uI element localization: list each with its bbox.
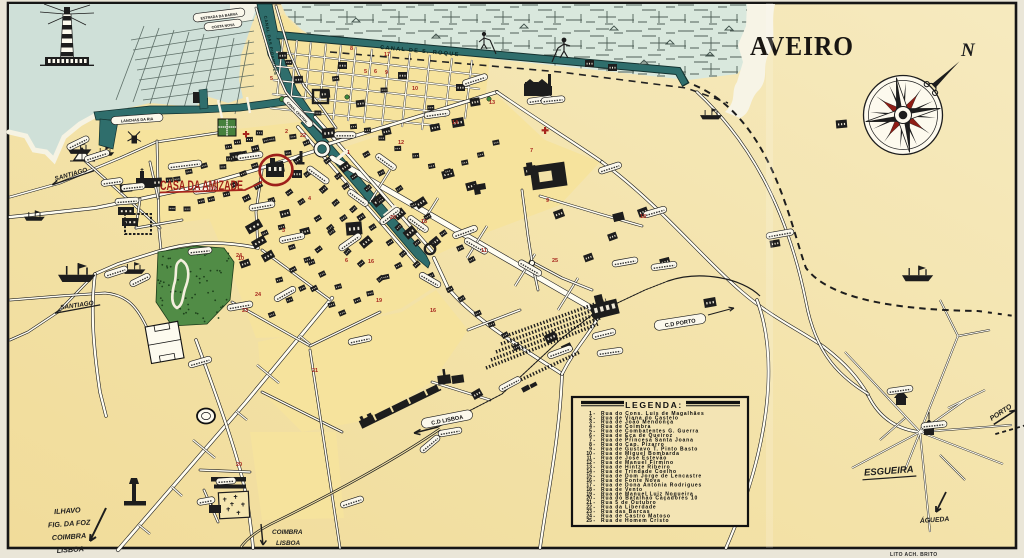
svg-text:8: 8 <box>350 46 353 52</box>
svg-text:LITO ACH. BRITO: LITO ACH. BRITO <box>890 552 938 558</box>
svg-text:LISBOA: LISBOA <box>276 540 301 547</box>
svg-text:25 -: 25 - <box>586 518 595 524</box>
svg-text:15: 15 <box>421 219 427 225</box>
svg-text:6: 6 <box>345 258 348 264</box>
svg-text:5: 5 <box>364 69 367 75</box>
svg-text:COIMBRA: COIMBRA <box>272 529 303 536</box>
svg-text:10: 10 <box>238 256 244 262</box>
svg-text:5: 5 <box>270 76 273 82</box>
svg-text:2: 2 <box>285 129 288 135</box>
svg-text:23: 23 <box>242 308 248 314</box>
svg-text:12: 12 <box>398 140 404 146</box>
svg-text:AVEIRO: AVEIRO <box>750 31 854 61</box>
svg-text:17: 17 <box>384 52 390 58</box>
svg-text:N: N <box>960 40 976 61</box>
svg-text:20: 20 <box>390 215 396 221</box>
svg-text:ILHAVO: ILHAVO <box>54 505 82 516</box>
svg-text:9: 9 <box>546 198 549 204</box>
svg-text:18: 18 <box>640 214 646 220</box>
svg-text:1: 1 <box>347 150 350 156</box>
svg-text:21: 21 <box>312 368 318 374</box>
svg-text:13: 13 <box>489 100 495 106</box>
svg-text:16: 16 <box>368 259 374 265</box>
svg-text:Rua de Homem Cristo: Rua de Homem Cristo <box>601 518 669 524</box>
svg-text:7: 7 <box>530 148 533 154</box>
svg-text:22: 22 <box>300 133 306 139</box>
svg-text:LISBOA: LISBOA <box>56 544 84 555</box>
svg-text:10: 10 <box>412 86 418 92</box>
svg-text:9: 9 <box>385 70 388 76</box>
svg-text:19: 19 <box>376 298 382 304</box>
svg-text:LEGENDA:: LEGENDA: <box>625 400 683 410</box>
svg-text:24: 24 <box>255 292 262 298</box>
svg-text:6: 6 <box>374 69 377 75</box>
svg-text:3: 3 <box>282 228 285 234</box>
svg-text:14: 14 <box>452 120 459 126</box>
svg-text:25: 25 <box>552 258 558 264</box>
svg-text:20: 20 <box>236 462 242 468</box>
svg-text:11: 11 <box>481 248 487 254</box>
svg-text:16: 16 <box>430 308 436 314</box>
